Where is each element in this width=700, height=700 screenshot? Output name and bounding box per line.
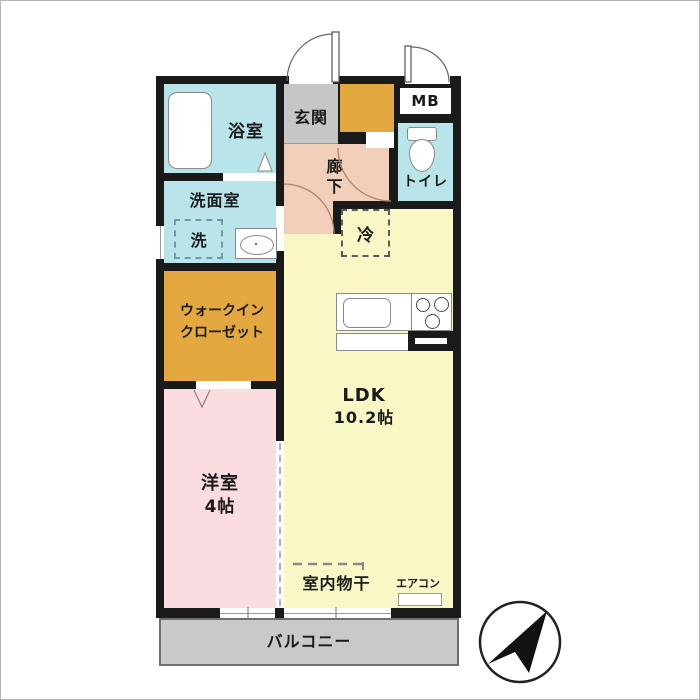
stove-burner-icon xyxy=(416,298,430,312)
entrance-step-line xyxy=(284,143,338,144)
bathroom-label: 浴室 xyxy=(211,122,281,143)
stove-burner-icon xyxy=(425,314,440,329)
shoe-cabinet xyxy=(340,84,394,132)
entrance-label: 玄関 xyxy=(284,108,338,128)
washroom-window xyxy=(156,226,164,259)
meter-box: MB xyxy=(400,88,451,114)
bedroom-label: 洋室 4帖 xyxy=(164,472,276,519)
refrigerator-label: 冷 xyxy=(357,221,374,246)
closet-door-opening xyxy=(196,381,251,389)
corridor-label: 廊 下 xyxy=(320,157,350,197)
washing-machine-space: 洗 xyxy=(174,219,223,259)
balcony-label: バルコニー xyxy=(267,632,352,652)
ldk-balcony-window xyxy=(284,608,391,618)
north-compass-icon xyxy=(480,602,560,682)
stove xyxy=(411,293,452,331)
washing-machine-label: 洗 xyxy=(190,227,206,251)
entrance-door-opening xyxy=(289,76,333,84)
balcony: バルコニー xyxy=(159,618,459,666)
indoor-drying-label: 室内物干 xyxy=(289,574,384,594)
bathtub-icon xyxy=(168,92,212,169)
bathroom-door-opening xyxy=(223,173,276,181)
ldk-label: LDK 10.2帖 xyxy=(314,385,414,428)
refrigerator-space: 冷 xyxy=(341,209,390,257)
entrance-door-swing-arc xyxy=(287,34,333,81)
aircon-unit-box xyxy=(398,593,442,606)
kitchen-sink-icon xyxy=(343,298,391,328)
meter-box-label: MB xyxy=(411,92,439,111)
aircon-label: エアコン xyxy=(392,577,444,591)
sliding-door-opening xyxy=(276,441,284,608)
sink-icon xyxy=(240,235,274,255)
washroom-label: 洗面室 xyxy=(165,191,265,211)
entrance-step xyxy=(366,132,394,148)
wic-label: ウォークイン クローゼット xyxy=(166,300,278,345)
bedroom-balcony-window xyxy=(220,608,275,618)
toilet-label: トイレ xyxy=(398,174,453,192)
washroom-door-opening xyxy=(276,206,284,251)
room-corridor-lower xyxy=(284,201,333,234)
kitchen-pass-slit xyxy=(415,338,447,344)
kitchen-counter-lower xyxy=(336,333,409,351)
floor-plan-canvas: MB 洗 冷 バルコニー 浴室 洗面室 玄関 トイレ 廊 下 ウォークイン クロ… xyxy=(0,0,700,700)
kitchen-counter xyxy=(336,293,412,331)
entrance-door-leaf xyxy=(332,32,339,82)
mb-door-opening xyxy=(405,76,450,84)
stove-burner-icon xyxy=(434,297,449,312)
sink-drain-dot xyxy=(255,243,257,245)
vanity-sink-box xyxy=(235,228,277,259)
